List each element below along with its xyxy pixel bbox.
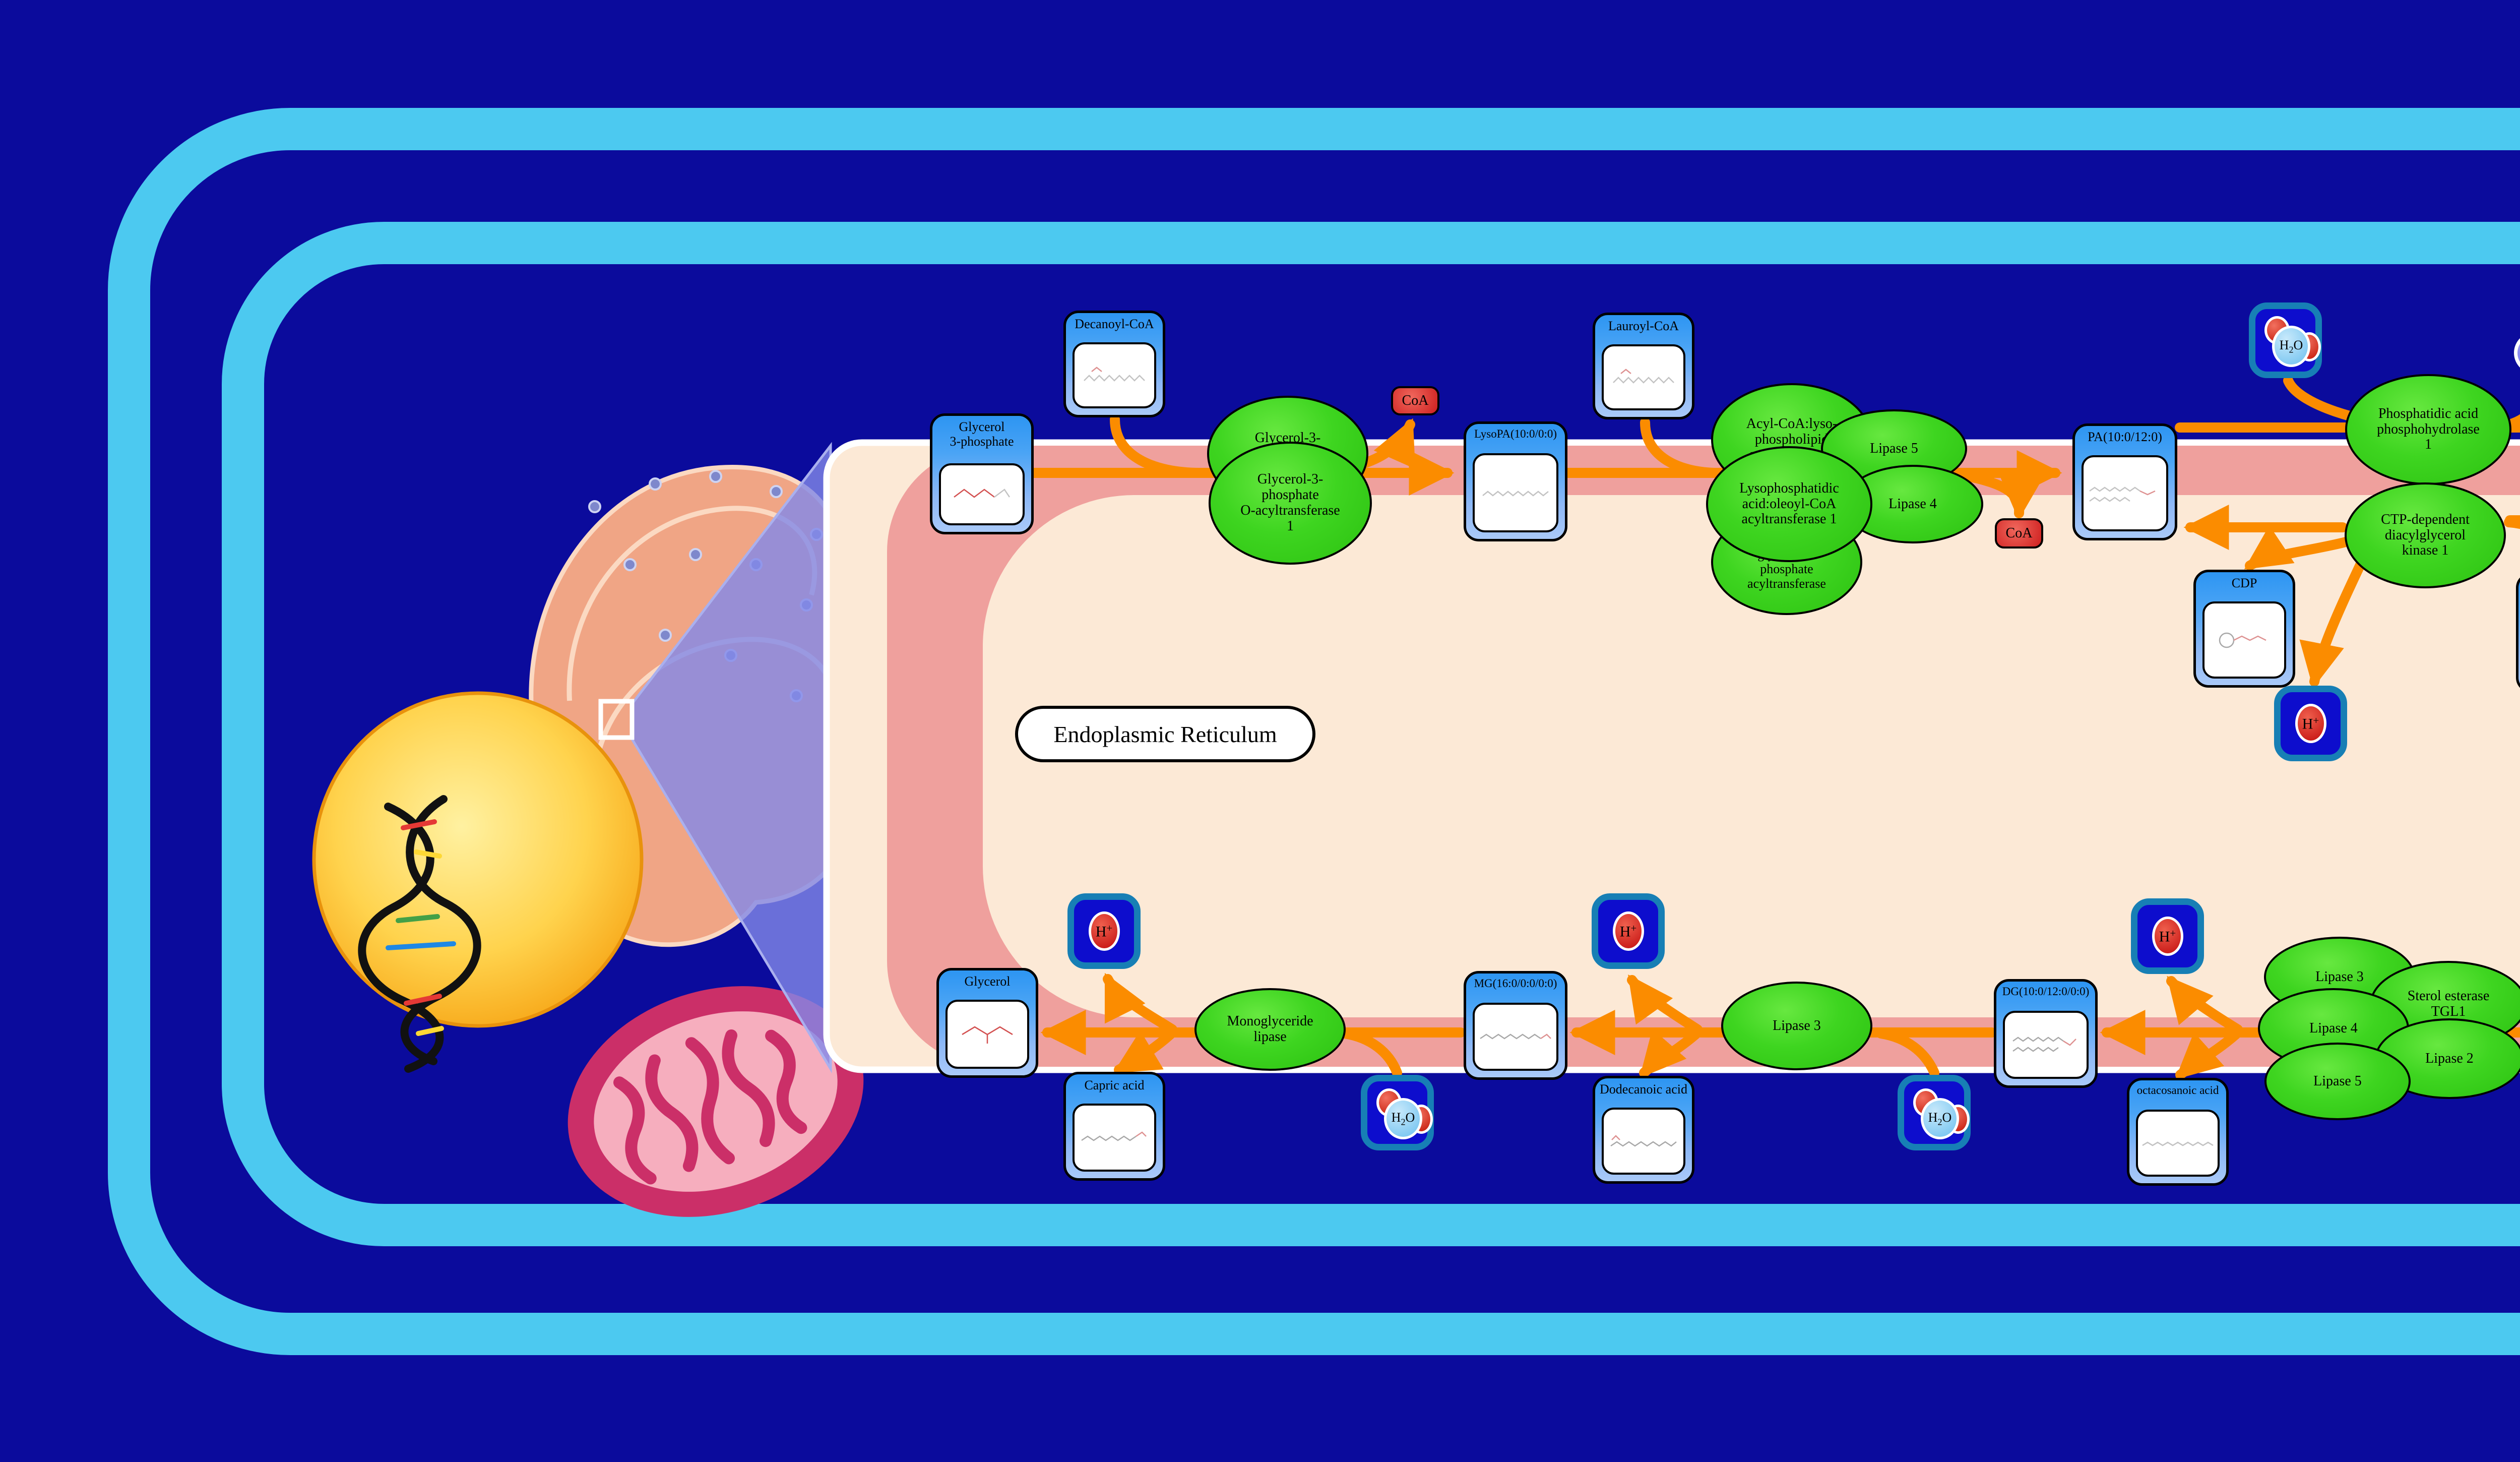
molecule-structure-icon: [2212, 625, 2277, 655]
metabolite-node-capric-acid[interactable]: Capric acid: [1063, 1072, 1165, 1181]
metabolite-node-pa[interactable]: PA(10:0/12:0): [2072, 423, 2177, 540]
proton-icon: H+: [2295, 704, 2326, 743]
enzyme-label: Glycerol-3- phosphate O-acyltransferase …: [1240, 472, 1340, 534]
structure-box: [2202, 601, 2286, 679]
structure-box: [939, 463, 1025, 525]
metabolite-label: Lauroyl-CoA: [1596, 319, 1691, 333]
metabolite-label: octacosanoic acid: [2130, 1084, 2225, 1097]
structure-box: [1473, 1003, 1558, 1071]
enzyme-label: Lipase 4: [1888, 497, 1937, 512]
enzyme-label: Lipase 3: [1773, 1018, 1821, 1034]
water-molecule-icon: H2O: [1384, 1098, 1422, 1139]
enzyme-cdk1[interactable]: CTP-dependent diacylglycerol kinase 1: [2345, 482, 2506, 588]
structure-box: [2003, 1011, 2089, 1079]
coa-label: CoA: [2006, 525, 2033, 541]
metabolite-node-decanoyl-coa[interactable]: Decanoyl-CoA: [1063, 311, 1165, 417]
metabolite-label: Glycerol 3-phosphate: [933, 419, 1030, 449]
metabolite-label: Glycerol: [940, 974, 1035, 989]
proton-chip-right[interactable]: H+: [2131, 898, 2204, 974]
enzyme-label: Monoglyceride lipase: [1227, 1014, 1313, 1045]
water-molecule-icon: H2O: [1921, 1098, 1959, 1139]
proton-chip-mid[interactable]: H+: [1592, 893, 1665, 969]
structure-box: [1602, 1108, 1685, 1175]
molecule-structure-icon: [949, 479, 1015, 510]
metabolite-node-dodecanoic-acid[interactable]: Dodecanoic acid: [1593, 1076, 1694, 1184]
metabolite-label: MG(16:0/0:0/0:0): [1467, 977, 1564, 990]
proton-icon: H+: [1613, 911, 1644, 951]
metabolite-node-lauroyl-coa[interactable]: Lauroyl-CoA: [1593, 313, 1694, 419]
enzyme-label: Lipase 4: [2309, 1021, 2358, 1037]
molecule-structure-icon: [1611, 362, 1676, 393]
proton-icon: H+: [2152, 917, 2183, 956]
enzyme-label: Sterol esterase TGL1: [2408, 989, 2490, 1020]
h2o-chip-top[interactable]: H2O: [2249, 302, 2322, 378]
enzyme-gpat1[interactable]: Glycerol-3- phosphate O-acyltransferase …: [1209, 442, 1372, 565]
metabolite-label: PA(10:0/12:0): [2076, 430, 2174, 444]
molecule-structure-icon: [2010, 1030, 2081, 1060]
metabolite-node-cdp[interactable]: CDP: [2193, 570, 2295, 688]
metabolite-node-octacosanoic-acid[interactable]: octacosanoic acid: [2127, 1078, 2229, 1186]
structure-box: [946, 1000, 1029, 1069]
compartment-label-pill: Endoplasmic Reticulum: [1015, 706, 1315, 762]
structure-box: [2136, 1110, 2220, 1177]
molecule-structure-icon: [1082, 360, 1147, 391]
pathway-canvas: Endoplasmic Reticulum Glycerol-3- phosph…: [0, 0, 2520, 1462]
enzyme-lipase5-bottom[interactable]: Lipase 5: [2264, 1043, 2411, 1120]
metabolite-label: DG(10:0/12:0/0:0): [1997, 985, 2094, 998]
metabolite-label: Decanoyl-CoA: [1067, 317, 1162, 331]
metabolite-node-glycerol[interactable]: Glycerol: [936, 968, 1038, 1078]
metabolite-label: CDP: [2197, 576, 2292, 590]
molecule-structure-icon: [2087, 478, 2163, 509]
molecule-structure-icon: [1478, 1024, 1553, 1050]
enzyme-lpaat1[interactable]: Lysophosphatidic acid:oleoyl-CoA acyltra…: [1706, 446, 1872, 562]
molecule-structure-icon: [2140, 1133, 2216, 1153]
coa-chip-2[interactable]: CoA: [1995, 518, 2043, 549]
water-molecule-icon: H2O: [2272, 326, 2310, 367]
metabolite-node-dg-bottom[interactable]: DG(10:0/12:0/0:0): [1994, 979, 2098, 1088]
structure-box: [1602, 344, 1685, 410]
structure-box: [1073, 342, 1156, 408]
metabolite-node-glycerol-3-phosphate[interactable]: Glycerol 3-phosphate: [930, 413, 1034, 534]
molecule-structure-icon: [1079, 1125, 1150, 1150]
metabolite-label: Capric acid: [1067, 1078, 1162, 1092]
enzyme-label: Lipase 3: [2315, 969, 2364, 985]
coa-chip-1[interactable]: CoA: [1391, 386, 1439, 415]
structure-box: [1473, 453, 1558, 532]
metabolite-label: LysoPA(10:0/0:0): [1467, 428, 1564, 441]
enzyme-pap1[interactable]: Phosphatidic acid phosphohydrolase 1: [2345, 374, 2511, 485]
enzyme-label: Lipase 5: [2313, 1074, 2362, 1089]
proton-chip-left[interactable]: H+: [1067, 893, 1141, 969]
enzyme-label: Lipase 2: [2425, 1051, 2474, 1067]
metabolite-node-mg[interactable]: MG(16:0/0:0/0:0): [1464, 971, 1567, 1080]
enzyme-monoglyceride-lipase[interactable]: Monoglyceride lipase: [1194, 988, 1346, 1071]
structure-box: [2082, 455, 2168, 531]
metabolite-node-lysopa[interactable]: LysoPA(10:0/0:0): [1464, 421, 1567, 541]
molecule-structure-icon: [1480, 480, 1551, 506]
proton-chip-top[interactable]: H+: [2274, 686, 2347, 761]
h2o-chip-left[interactable]: H2O: [1361, 1075, 1434, 1150]
h2o-chip-mid[interactable]: H2O: [1898, 1075, 1971, 1150]
compartment-label: Endoplasmic Reticulum: [1053, 721, 1277, 748]
enzyme-label: CTP-dependent diacylglycerol kinase 1: [2381, 512, 2470, 559]
metabolite-label: Dodecanoic acid: [1596, 1082, 1691, 1096]
metabolite-node-ctp[interactable]: Cytidine triphosphate: [2516, 573, 2520, 693]
molecule-structure-icon: [957, 1019, 1018, 1050]
enzyme-lipase3-mid[interactable]: Lipase 3: [1721, 982, 1872, 1070]
enzyme-label: Phosphatidic acid phosphohydrolase 1: [2377, 406, 2480, 453]
molecule-structure-icon: [1608, 1129, 1679, 1154]
enzyme-label: Lysophosphatidic acid:oleoyl-CoA acyltra…: [1739, 481, 1839, 527]
proton-icon: H+: [1089, 911, 1120, 951]
enzyme-label: Lipase 5: [1870, 441, 1918, 457]
coa-label: CoA: [1402, 393, 1429, 409]
structure-box: [1073, 1104, 1156, 1172]
